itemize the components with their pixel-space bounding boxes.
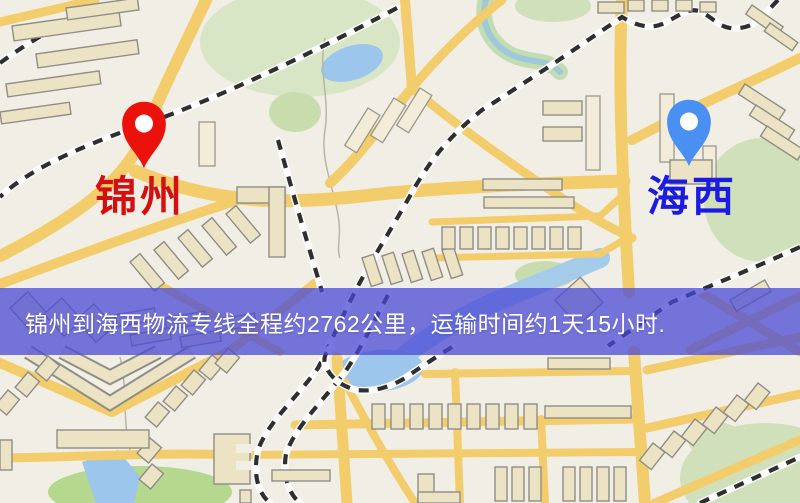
destination-pin-icon xyxy=(664,94,714,170)
origin-pin-icon xyxy=(119,96,169,172)
destination-pin-shape xyxy=(667,100,711,167)
origin-pin-shape xyxy=(122,102,166,169)
route-info-text: 锦州到海西物流专线全程约2762公里，运输时间约1天15小时. xyxy=(25,305,665,339)
origin-pin-hole xyxy=(135,115,153,133)
map-screenshot: 锦州 海西 锦州到海西物流专线全程约2762公里，运输时间约1天15小时. xyxy=(0,0,800,503)
destination-pin-hole xyxy=(680,113,698,131)
route-info-banner: 锦州到海西物流专线全程约2762公里，运输时间约1天15小时. xyxy=(0,288,800,355)
origin-city-label: 锦州 xyxy=(80,176,200,220)
destination-city-label: 海西 xyxy=(632,176,752,220)
map-image xyxy=(0,0,800,503)
